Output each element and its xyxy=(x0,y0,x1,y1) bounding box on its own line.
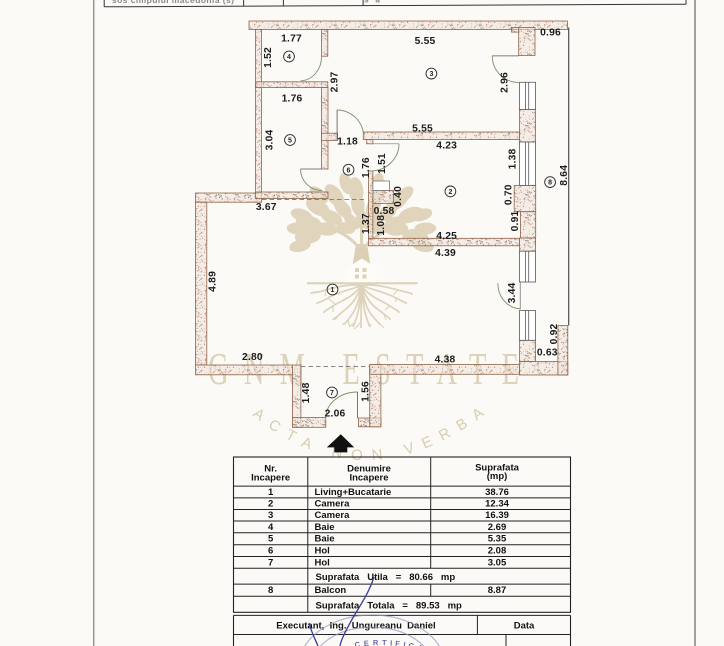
svg-text:6: 6 xyxy=(268,546,273,557)
svg-text:2.97: 2.97 xyxy=(330,72,341,93)
svg-text:Hol: Hol xyxy=(315,557,330,568)
svg-text:R: R xyxy=(373,638,379,646)
svg-text:2.96: 2.96 xyxy=(500,72,511,93)
svg-text:1.52: 1.52 xyxy=(263,47,274,68)
svg-text:E: E xyxy=(363,639,369,646)
svg-text:4: 4 xyxy=(287,54,291,61)
svg-text:3.67: 3.67 xyxy=(256,202,277,213)
svg-text:Incapere: Incapere xyxy=(251,472,290,483)
svg-text:Camera: Camera xyxy=(315,510,351,521)
svg-text:7: 7 xyxy=(268,557,273,568)
svg-text:38.76: 38.76 xyxy=(485,487,509,498)
svg-text:1.76: 1.76 xyxy=(361,157,372,178)
svg-text:6: 6 xyxy=(347,167,351,174)
svg-text:1: 1 xyxy=(268,487,274,498)
svg-text:4.25: 4.25 xyxy=(436,231,457,242)
svg-text:1.51: 1.51 xyxy=(377,153,388,174)
svg-text:3: 3 xyxy=(429,71,433,78)
svg-text:3: 3 xyxy=(268,510,273,521)
svg-text:12.34: 12.34 xyxy=(485,499,509,510)
svg-text:5.35: 5.35 xyxy=(488,534,507,545)
svg-text:0.40: 0.40 xyxy=(393,186,404,207)
svg-text:Living+Bucatarie: Living+Bucatarie xyxy=(315,487,392,498)
svg-text:1.48: 1.48 xyxy=(301,382,312,403)
svg-text:Hol: Hol xyxy=(315,546,330,557)
svg-text:Baie: Baie xyxy=(315,522,335,533)
svg-text:5.55: 5.55 xyxy=(415,36,436,47)
svg-text:4.23: 4.23 xyxy=(436,140,457,151)
svg-text:4.89: 4.89 xyxy=(207,271,218,292)
svg-text:0.63: 0.63 xyxy=(537,348,558,359)
svg-text:Incapere: Incapere xyxy=(349,472,388,483)
svg-text:Executant, Ing. Ungureanu D: Executant, Ing. Ungureanu Daniel xyxy=(276,620,435,631)
svg-text:0.96: 0.96 xyxy=(540,28,561,39)
svg-text:1.38: 1.38 xyxy=(507,149,518,170)
svg-text:0.70: 0.70 xyxy=(504,184,515,205)
svg-text:Camera: Camera xyxy=(315,499,351,510)
svg-text:1.08: 1.08 xyxy=(376,215,387,236)
svg-text:2.80: 2.80 xyxy=(242,352,263,363)
svg-text:3.04: 3.04 xyxy=(265,130,276,151)
svg-text:3.05: 3.05 xyxy=(488,557,507,568)
svg-text:Baie: Baie xyxy=(315,534,335,545)
svg-text:1.37: 1.37 xyxy=(361,213,372,234)
svg-text:1.18: 1.18 xyxy=(337,137,358,148)
svg-text:0.92: 0.92 xyxy=(549,324,560,345)
svg-text:3.44: 3.44 xyxy=(507,283,518,304)
svg-text:8.64: 8.64 xyxy=(559,165,570,186)
svg-text:Data: Data xyxy=(514,620,535,631)
svg-text:2: 2 xyxy=(268,499,273,510)
svg-text:4.38: 4.38 xyxy=(435,355,456,366)
svg-text:2.69: 2.69 xyxy=(488,522,507,533)
svg-text:8.87: 8.87 xyxy=(488,585,507,596)
svg-text:1.77: 1.77 xyxy=(281,34,302,45)
svg-text:Balcon: Balcon xyxy=(315,585,347,596)
svg-text:5.55: 5.55 xyxy=(412,124,433,135)
svg-text:1.76: 1.76 xyxy=(282,94,303,105)
svg-text:5: 5 xyxy=(268,534,274,545)
svg-text:2.08: 2.08 xyxy=(488,546,507,557)
svg-text:2: 2 xyxy=(448,189,452,196)
svg-text:(mp): (mp) xyxy=(487,471,508,482)
svg-text:8: 8 xyxy=(548,180,552,187)
svg-text:sos cimpului macedonia (s): sos cimpului macedonia (s) xyxy=(112,0,234,5)
svg-text:1.56: 1.56 xyxy=(361,381,372,402)
svg-text:Suprafata Totala = 89.53: Suprafata Totala = 89.53 mp xyxy=(316,600,463,611)
svg-text:1: 1 xyxy=(331,287,335,294)
svg-text:8: 8 xyxy=(268,585,273,596)
svg-text:5: 5 xyxy=(288,138,292,145)
svg-text:4.39: 4.39 xyxy=(435,248,456,259)
svg-text:2.06: 2.06 xyxy=(325,408,346,419)
svg-text:T: T xyxy=(382,638,387,646)
svg-text:4: 4 xyxy=(268,522,274,533)
svg-text:16.39: 16.39 xyxy=(485,510,509,521)
svg-text:Suprafata Utila = 80.66: Suprafata Utila = 80.66 mp xyxy=(316,572,456,583)
svg-text:0.91: 0.91 xyxy=(510,211,521,232)
svg-text:7: 7 xyxy=(330,390,334,397)
